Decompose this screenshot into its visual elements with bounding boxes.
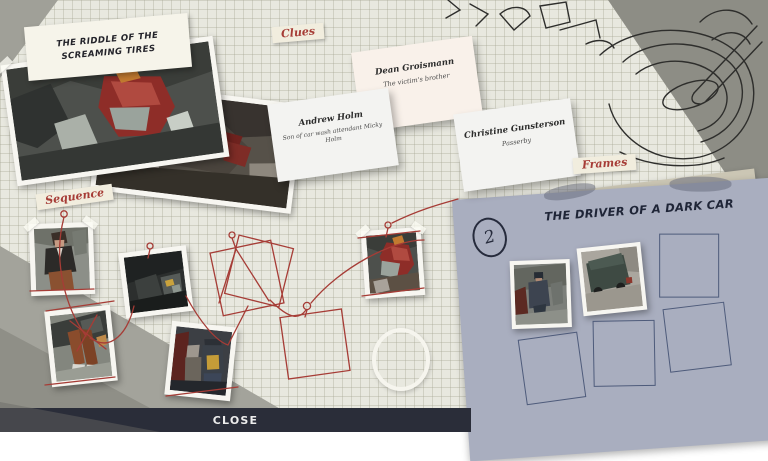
- empty-frame-slot[interactable]: [659, 234, 719, 298]
- torn-paper-smudge: [669, 177, 731, 192]
- sequence-photo-crash-closeup[interactable]: [361, 227, 426, 299]
- clue-card-christine-gunsterson[interactable]: Christine Gunsterson Passerby: [453, 98, 581, 192]
- frame-photo-suspect-walking[interactable]: [510, 259, 572, 329]
- close-button-label: CLOSE: [213, 414, 258, 427]
- frame-photo-dark-van[interactable]: [577, 242, 648, 316]
- sequence-photo-detective-thinking[interactable]: [29, 222, 95, 296]
- sequence-photo-men-at-car[interactable]: [164, 321, 237, 401]
- torn-paper-smudge: [543, 180, 597, 203]
- sequence-label: Sequence: [35, 184, 114, 211]
- frame-number: 2: [482, 226, 498, 248]
- close-button[interactable]: CLOSE: [0, 408, 471, 432]
- clue-card-andrew-holm[interactable]: Andrew Holm Son of car wash attendant Mi…: [267, 88, 399, 182]
- sequence-photo-walking-legs[interactable]: [44, 305, 118, 387]
- empty-frame-slot[interactable]: [518, 332, 587, 406]
- empty-circle-slot[interactable]: [372, 328, 430, 391]
- frame-number-badge: 2: [468, 214, 512, 262]
- clues-label: Clues: [271, 23, 324, 43]
- evidence-board: THE RIDDLE OF THE SCREAMING TIRES Clues …: [0, 0, 768, 432]
- empty-frame-slot[interactable]: [663, 302, 732, 373]
- sequence-photo-car-interior[interactable]: [118, 245, 194, 319]
- case-title: THE RIDDLE OF THE SCREAMING TIRES: [25, 27, 191, 67]
- frames-label: Frames: [573, 154, 637, 174]
- empty-frame-slot[interactable]: [593, 320, 656, 387]
- frames-panel: 2 THE DRIVER OF A DARK CAR: [452, 176, 768, 461]
